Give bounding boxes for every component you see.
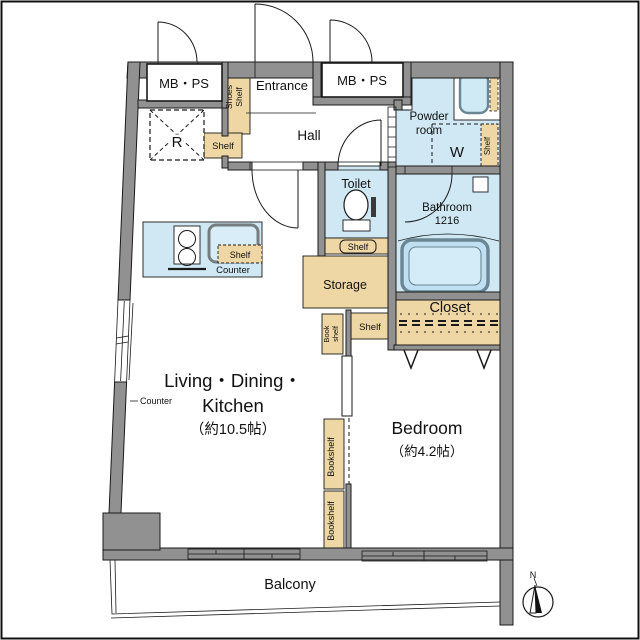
vanity-side-shelf — [490, 75, 498, 111]
floorplan-page: N MB・PS MB・PS Entrance Hall Powder room … — [0, 0, 640, 640]
label-ldk-2: Kitchen — [202, 395, 264, 416]
label-closet: Closet — [429, 300, 470, 316]
label-bathroom: Bathroom — [422, 202, 472, 214]
label-window-counter: Counter — [140, 396, 172, 406]
label-entry-shelf: Shelf — [212, 141, 234, 152]
label-kitchen-shelf: Shelf — [230, 250, 251, 260]
wall-closet-bottom — [394, 345, 500, 350]
wall-hall-left-a — [222, 108, 228, 136]
label-powder-2: room — [416, 125, 442, 137]
wall-corner-block — [103, 513, 160, 550]
label-ldk-size: （約10.5帖） — [190, 421, 276, 438]
label-bathroom-size: 1216 — [435, 215, 459, 227]
label-balcony: Balcony — [264, 577, 316, 593]
label-mid-shelf: Shelf — [359, 322, 381, 333]
bedroom-sliding-door — [342, 356, 352, 416]
label-toilet: Toilet — [341, 177, 371, 191]
label-bookshelf-lower: Bookshelf — [326, 501, 336, 541]
vanity-sink — [460, 73, 488, 113]
label-book-shelf-2: shelf — [331, 325, 340, 342]
label-hall: Hall — [297, 128, 320, 143]
label-shoes-shelf-2: Shelf — [234, 87, 244, 107]
label-entrance: Entrance — [256, 78, 308, 93]
wall-toilet-left — [318, 162, 325, 256]
label-ldk-1: Living・Dining・ — [164, 370, 302, 391]
floorplan-svg: N MB・PS MB・PS Entrance Hall Powder room … — [0, 0, 640, 640]
stove — [174, 226, 200, 264]
wall-bathroom-top — [396, 166, 500, 174]
wall-bottom — [103, 548, 513, 560]
label-kitchen-counter: Counter — [216, 265, 250, 276]
label-storage: Storage — [323, 278, 367, 292]
label-mbps-left: MB・PS — [159, 76, 209, 91]
bath-control-panel — [473, 177, 488, 192]
toilet-bowl — [344, 190, 368, 220]
wall-right — [500, 62, 513, 625]
label-powder-1: Powder — [410, 111, 449, 123]
wall-toilet-bath-divider — [388, 162, 396, 350]
toilet-controls — [371, 197, 376, 217]
wall-hall-bottom-a — [228, 162, 252, 170]
label-washer: W — [450, 144, 465, 161]
label-bedroom-size: （約4.2帖） — [391, 444, 464, 459]
wall-partition-top — [346, 310, 351, 356]
toilet-tank — [343, 220, 370, 231]
label-shoes-shelf-1: Shoes — [224, 85, 234, 109]
label-bedroom: Bedroom — [391, 418, 462, 438]
label-bookshelf-upper: Bookshelf — [326, 437, 336, 477]
bathtub-inner — [409, 247, 481, 285]
wall-partition-bottom — [346, 484, 351, 548]
compass-north-label: N — [530, 570, 537, 580]
label-fridge: R — [172, 134, 183, 151]
wall-bathroom-bottom — [396, 292, 500, 300]
label-book-shelf-1: Book — [322, 325, 331, 342]
wall-hall-left-b — [222, 156, 228, 168]
wall-powder-stub — [394, 100, 402, 110]
label-powder-shelf: Shelf — [483, 136, 492, 155]
label-toilet-shelf: Shelf — [348, 242, 369, 252]
label-mbps-right: MB・PS — [337, 73, 387, 88]
